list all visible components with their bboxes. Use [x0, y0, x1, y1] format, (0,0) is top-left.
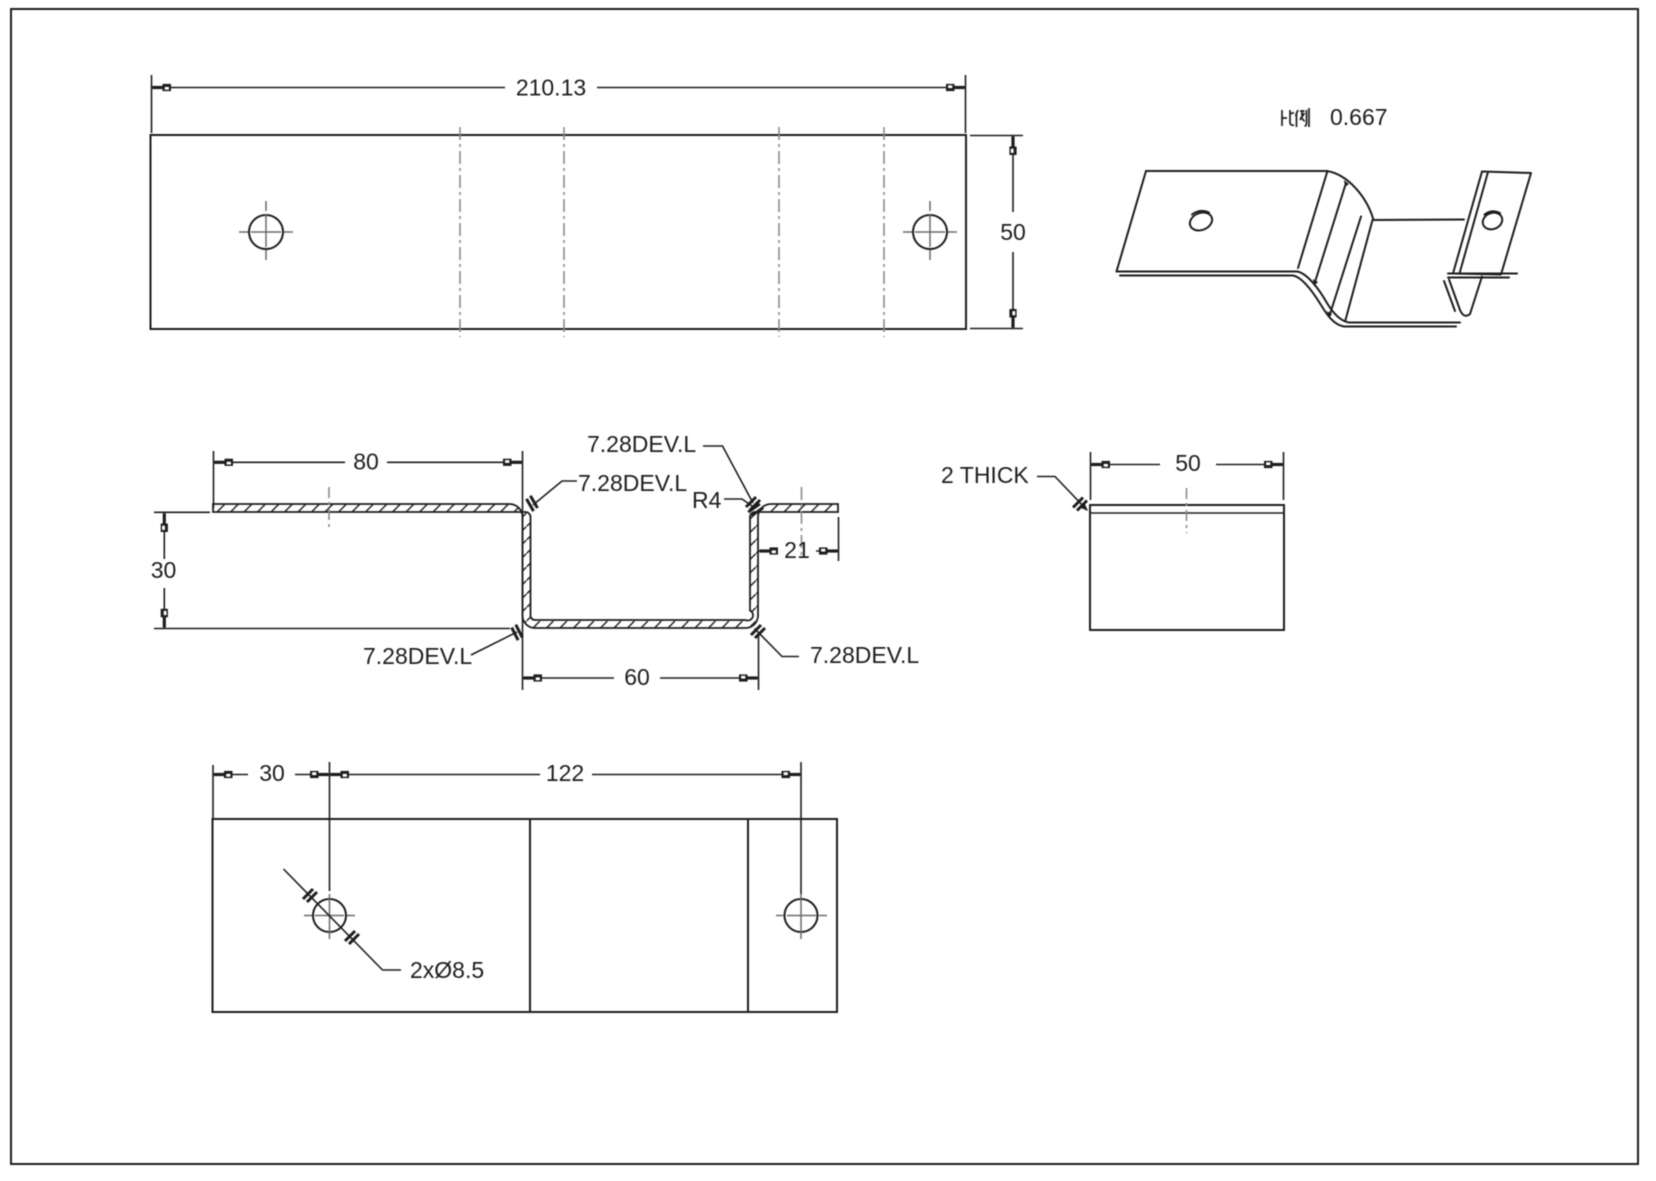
svg-text:50: 50 — [1175, 450, 1201, 476]
svg-text:7.28DEV.L: 7.28DEV.L — [810, 642, 919, 668]
svg-text:1: 1 — [797, 537, 810, 563]
svg-text:7.28DEV.L: 7.28DEV.L — [578, 470, 687, 496]
svg-text:60: 60 — [624, 664, 650, 690]
svg-text:30: 30 — [259, 760, 285, 786]
svg-text:30: 30 — [151, 557, 177, 583]
svg-text:R4: R4 — [692, 487, 722, 513]
svg-text:2 THICK: 2 THICK — [941, 462, 1029, 488]
svg-text:2: 2 — [784, 537, 797, 563]
svg-text:0.667: 0.667 — [1330, 104, 1388, 130]
svg-text:7.28DEV.L: 7.28DEV.L — [587, 431, 696, 457]
svg-text:122: 122 — [546, 760, 584, 786]
svg-text:7.28DEV.L: 7.28DEV.L — [363, 643, 472, 669]
svg-text:50: 50 — [1000, 219, 1026, 245]
svg-text:210.13: 210.13 — [516, 75, 586, 101]
svg-text:80: 80 — [353, 449, 379, 475]
svg-text:2xØ8.5: 2xØ8.5 — [410, 957, 484, 983]
